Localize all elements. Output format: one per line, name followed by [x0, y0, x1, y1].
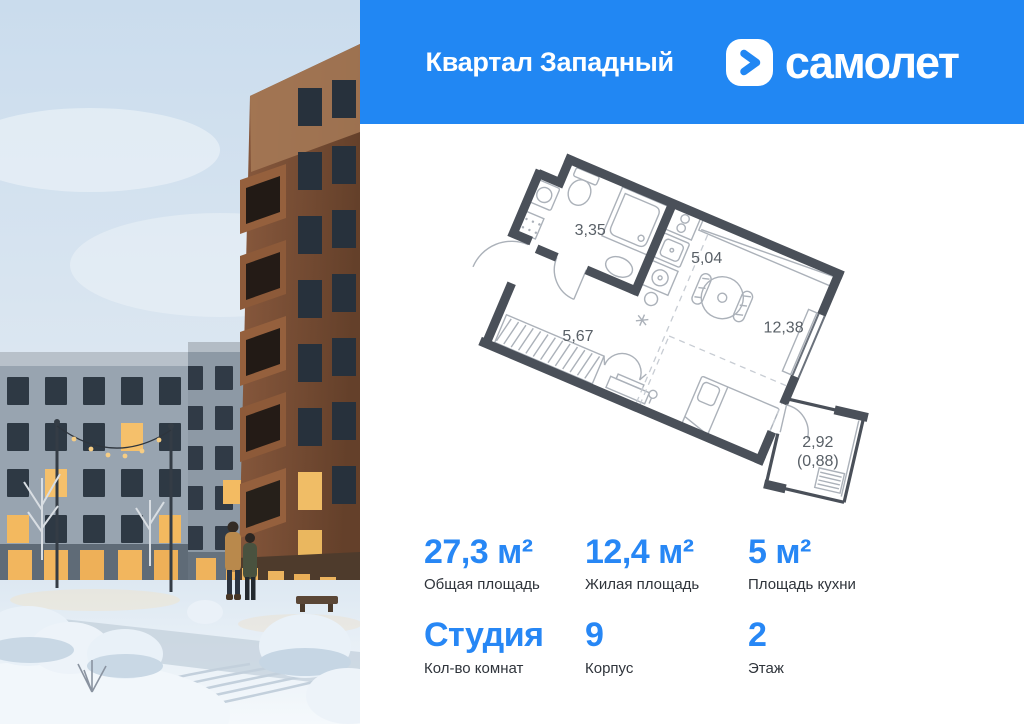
svg-text:2,92: 2,92 — [802, 434, 833, 451]
plan-balcony: 2,92 (0,88) — [764, 398, 868, 503]
stat-value: 2 — [748, 617, 968, 654]
stat-value: 27,3 м² — [424, 534, 585, 571]
floor-plan: 2,92 (0,88) 3,35 5,04 5,67 12,38 — [440, 128, 1020, 534]
samolet-chevron-icon — [726, 39, 773, 86]
svg-text:12,38: 12,38 — [764, 319, 804, 336]
stat-floor: 2 Этаж — [748, 617, 968, 676]
balcony-boxes — [240, 164, 286, 538]
kitchen-area-label: 5,04 — [691, 250, 722, 267]
stat-value: 5 м² — [748, 534, 968, 571]
stat-label: Корпус — [585, 660, 748, 677]
bathroom-area-label: 3,35 — [575, 222, 606, 239]
stat-label: Площадь кухни — [748, 576, 968, 593]
stat-building: 9 Корпус — [585, 617, 748, 676]
stat-value: Студия — [424, 617, 585, 654]
stat-label: Этаж — [748, 660, 968, 677]
stat-living-area: 12,4 м² Жилая площадь — [585, 534, 748, 593]
svg-text:3,35: 3,35 — [575, 222, 606, 239]
stat-value: 12,4 м² — [585, 534, 748, 571]
svg-text:(0,88): (0,88) — [797, 453, 839, 470]
stat-value: 9 — [585, 617, 748, 654]
background-building-left — [0, 352, 188, 592]
listing-card: Квартал Западный самолет — [0, 0, 1024, 724]
stat-total-area: 27,3 м² Общая площадь — [424, 534, 585, 593]
stat-rooms: Студия Кол-во комнат — [424, 617, 585, 676]
hallway-area-label: 5,67 — [562, 328, 593, 345]
project-title: Квартал Западный — [426, 47, 674, 78]
balcony-area-label: 2,92 (0,88) — [797, 434, 839, 470]
svg-text:5,67: 5,67 — [562, 328, 593, 345]
details-panel: Квартал Западный самолет — [360, 0, 1024, 724]
stat-label: Кол-во комнат — [424, 660, 585, 677]
living-area-label: 12,38 — [764, 319, 804, 336]
stat-label: Жилая площадь — [585, 576, 748, 593]
samolet-wordmark: самолет — [785, 40, 959, 85]
plan-walls — [467, 146, 844, 465]
stat-kitchen-area: 5 м² Площадь кухни — [748, 534, 968, 593]
stats-grid: 27,3 м² Общая площадь 12,4 м² Жилая площ… — [424, 534, 968, 677]
svg-text:5,04: 5,04 — [691, 250, 722, 267]
plan-zone-lines — [635, 235, 831, 459]
stat-label: Общая площадь — [424, 576, 585, 593]
header: Квартал Западный самолет — [360, 0, 1024, 124]
samolet-logo: самолет — [726, 39, 959, 86]
building-photo — [0, 0, 360, 724]
